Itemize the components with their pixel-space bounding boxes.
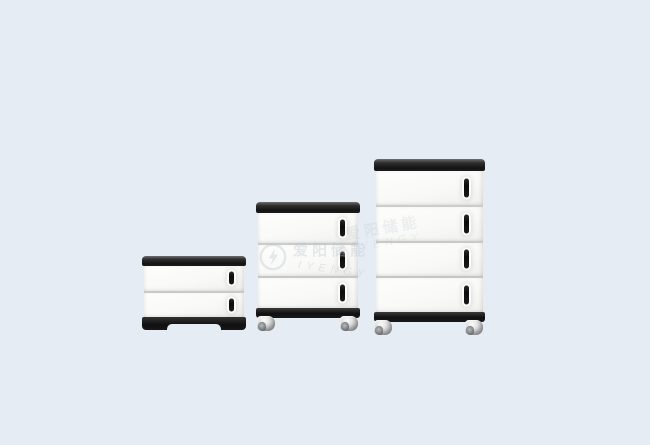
unit-module-stack [258,213,358,308]
caster-wheel-right [340,316,358,331]
module-handle [229,272,234,285]
battery-module [376,243,483,277]
unit-plinth-base [142,317,246,330]
unit-top-cap [142,256,246,266]
product-scene: 爱阳储能 IYENGY 爱阳储能 IYENGY [0,0,650,445]
battery-module [258,245,358,275]
caster-wheel-left [257,316,275,331]
module-handle [464,214,469,233]
caster-row [256,318,360,332]
battery-module [144,293,244,318]
plinth-notch [167,324,221,330]
unit-top-cap [256,202,360,213]
module-handle [464,286,469,305]
battery-module [376,171,483,205]
module-handle [464,250,469,269]
module-handle [340,284,345,301]
storage-unit-medium [256,202,360,332]
unit-module-stack [376,171,483,312]
storage-unit-small [142,256,246,330]
caster-row [374,322,485,334]
module-handle [229,298,234,311]
module-handle [340,252,345,269]
storage-unit-large [374,159,485,334]
battery-module [376,207,483,241]
caster-wheel-left [374,320,392,335]
unit-top-cap [374,159,485,171]
module-handle [464,178,469,197]
battery-module [258,213,358,243]
battery-module [144,266,244,291]
battery-module [376,278,483,312]
caster-wheel-right [465,320,483,335]
battery-module [258,278,358,308]
module-handle [340,220,345,237]
unit-module-stack [144,266,244,317]
